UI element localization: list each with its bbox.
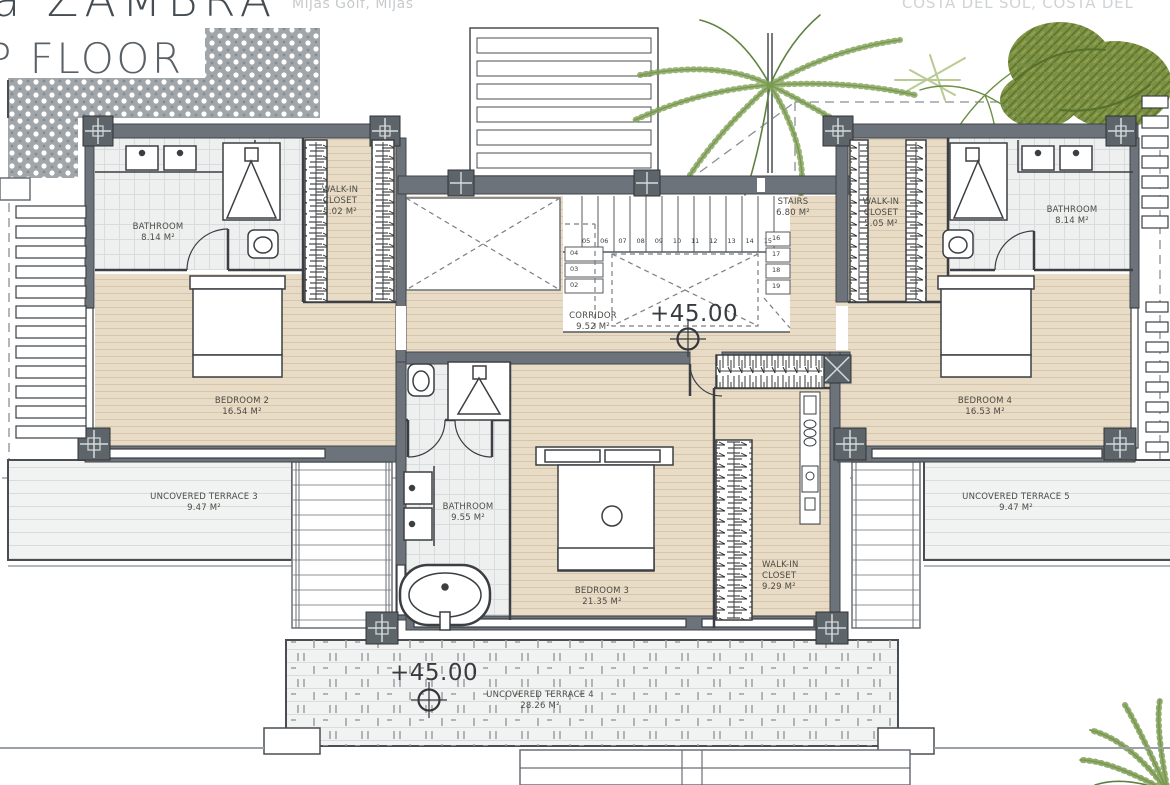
louver-panel-west: [16, 206, 86, 438]
round-side-table: [602, 506, 622, 526]
room-label-terrace-3: UNCOVERED TERRACE 3 9.47 M²: [118, 492, 290, 514]
floor-plan-canvas: a ZAMBRA Mijas Golf, Mijas COSTA DEL SOL…: [0, 0, 1170, 785]
louver-panel-east-upper: [1142, 96, 1168, 228]
stair-numbers-top: 0506 0708 0910 1112 1314 15: [582, 238, 772, 245]
window-bedroom4-east: [1131, 308, 1138, 448]
window-bedroom4: [872, 449, 1102, 458]
stair-number: 18: [772, 267, 780, 274]
stair-number: 03: [570, 266, 578, 273]
wall-right-wing-east: [1130, 138, 1139, 308]
stair-number: 02: [570, 282, 578, 289]
exterior-stair-right: [852, 462, 920, 628]
room-label-bedroom-4: BEDROOM 4 16.53 M²: [925, 396, 1045, 418]
room-label-bathroom-2: BATHROOM 8.14 M²: [98, 222, 218, 244]
terrace-pier: [264, 728, 320, 754]
toilet-bathroom3: [408, 364, 434, 396]
room-label-closet-2: WALK-IN CLOSET 5.02 M²: [304, 185, 376, 218]
planter: [0, 178, 30, 200]
door-gap-bedroom2: [396, 306, 406, 350]
pergola: [470, 28, 772, 176]
bed-bedroom2: [190, 276, 285, 377]
room-label-terrace-5: UNCOVERED TERRACE 5 9.47 M²: [930, 492, 1102, 514]
room-label-closet-3: WALK-IN CLOSET 9.29 M²: [762, 560, 820, 593]
window-bedroom2: [97, 449, 325, 458]
door-gap-bedroom4: [836, 306, 848, 350]
door-gap-terrace: [757, 178, 765, 192]
wall-left-wing-west: [85, 138, 94, 308]
wall-left-wing-north: [85, 124, 396, 138]
project-title: a ZAMBRA: [0, 0, 277, 27]
corner-bush: [1080, 700, 1168, 785]
room-label-bedroom-3: BEDROOM 3 21.35 M²: [542, 586, 662, 608]
stair-number: 04: [570, 250, 578, 257]
room-label-stairs: STAIRS 6.80 M²: [762, 197, 824, 219]
entry-steps: [520, 750, 910, 785]
wall-right-wing-north: [838, 124, 1138, 138]
project-subtitle: Mijas Golf, Mijas: [292, 0, 414, 12]
toilet-bathroom4: [943, 230, 973, 258]
room-label-bathroom-4: BATHROOM 8.14 M²: [1040, 205, 1104, 227]
level-annotation-corridor: +45.00: [650, 303, 738, 326]
wardrobe-closet3-side: [716, 440, 752, 620]
toilet-bathroom2: [248, 230, 278, 258]
stair-number: 19: [772, 283, 780, 290]
shower-bathroom3: [448, 362, 510, 420]
bathtub-bathroom3: [400, 565, 490, 630]
void-skylight: [406, 198, 560, 290]
window-bedroom2-west: [86, 308, 93, 448]
shower-bathroom4: [950, 143, 1007, 220]
shelf-closet3: [800, 392, 820, 524]
floor-title: P FLOOR: [0, 34, 184, 83]
exterior-stair-left: [292, 462, 392, 628]
stair-number: 17: [772, 251, 780, 258]
olive-tree: [1000, 22, 1170, 129]
room-label-bathroom-3: BATHROOM 9.55 M²: [436, 502, 500, 524]
floor-plan-drawing: [0, 0, 1170, 785]
project-location: COSTA DEL SOL, COSTA DEL: [902, 0, 1134, 12]
wardrobe-closet3-top: [716, 355, 824, 388]
room-label-closet-4: WALK-IN CLOSET 5.05 M²: [848, 197, 914, 230]
room-label-terrace-4: UNCOVERED TERRACE 4 28.26 M²: [452, 690, 628, 712]
room-label-corridor: CORRIDOR 9.52 M²: [558, 311, 628, 333]
wall-closet3-east: [830, 352, 840, 628]
stair-number: 16: [772, 235, 780, 242]
level-annotation-terrace: +45.00: [390, 662, 478, 685]
louver-panel-east-lower: [1146, 302, 1168, 452]
wall-right-wing-west: [836, 138, 848, 302]
room-label-bedroom-2: BEDROOM 2 16.54 M²: [182, 396, 302, 418]
bed-bedroom4: [938, 276, 1034, 377]
shower-bathroom2: [223, 143, 280, 220]
